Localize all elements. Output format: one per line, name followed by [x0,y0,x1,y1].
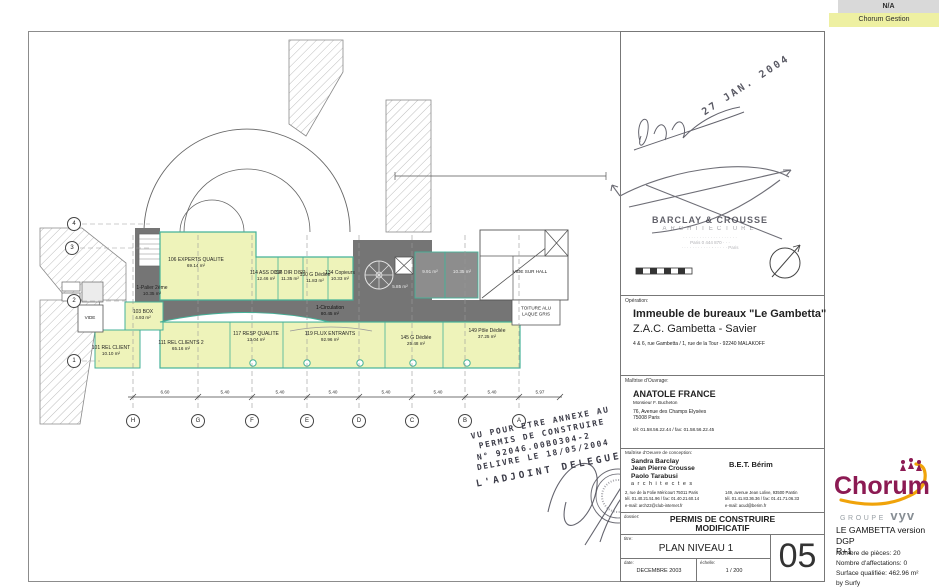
axis-bubble-d: D [352,414,366,428]
branding-card: Chorum GROUPE vyv LE GAMBETTA version DG… [830,455,939,588]
dim-label: 5.40 [329,390,338,395]
axis-bubble-c: C [405,414,419,428]
stat-surface: Surface qualifiée: 462.96 m² [836,569,918,579]
owner-name: ANATOLE FRANCE [633,389,716,399]
titre-label: titre: [624,536,633,541]
stat-pieces: Nombre de pièces: 20 [836,549,918,559]
titleblock-architect: Maîtrise d'Oeuvre de conception: Sandra … [620,448,825,514]
tab-na[interactable]: N/A [838,0,939,13]
owner-phone: tél: 01.58.56.22.44 / fax: 01.58.56.22.4… [633,427,714,432]
room-label-101: 101 REL CLIENT10.10 m² [92,345,130,357]
architect-email: e-mail: arch22@club-internet.fr [625,503,683,508]
room-label-wc1: 9.91 m² [422,269,438,275]
sheet-number: 05 [771,537,824,576]
bet-phone: tél. 01.41.83.36.36 / fax: 01.41.71.06.3… [725,496,799,501]
chorum-logo-icon: Chorum [833,458,933,506]
axis-bubble-b: B [458,414,472,428]
room-label-134: 134 Copieurs10.33 m² [325,270,355,282]
room-label-145: 145 G Dédiée25.48 m² [401,335,432,347]
bet-address: 149, avenue Jean Lolive, 93500 Pantin [725,490,797,495]
architect-names: Sandra Barclay Jean Pierre Crousse Paolo… [631,458,695,480]
dim-label: 5.40 [276,390,285,395]
architect-address: 2, rue de la Folie Méricourt 75011 Paris [625,490,698,495]
dossier-title: PERMIS DE CONSTRUIRE MODIFICATIF [621,515,824,534]
room-label-117: 117 RESP QUALITE13.04 m² [233,331,279,343]
room-label-menage: 5.85 m² [392,284,408,290]
room-label-vide: VIDE [85,315,96,321]
vyv-text: vyv [890,508,915,523]
owner-contact: Monsieur F. Bucheton [633,400,677,405]
titleblock-owner: Maîtrise d'Ouvrage: ANATOLE FRANCE Monsi… [620,375,825,450]
room-label-wc2: 10.35 m² [453,269,471,275]
titleblock-stamp-area [620,31,825,297]
titleblock-sheet-number: 05 [770,534,825,582]
echelle-label: échelle: [700,560,715,565]
room-label-toiture: TOITURE ALULAQUE GRIS [521,305,551,316]
titleblock-echelle: échelle: 1 / 200 [696,558,772,582]
titleblock-titre: titre: PLAN NIVEAU 1 [620,534,772,560]
bet-name: B.E.T. Bérim [729,460,773,469]
axis-bubble-2: 2 [67,294,81,308]
room-label-119: 119 FLUX ENTRANTS92.96 m² [305,331,355,343]
app-canvas: 106 EXPERTS QUALITE69.14 m² 1-Palier 2èm… [0,0,939,588]
date-label: date: [624,560,634,565]
axis-bubble-f: F [245,414,259,428]
dim-label: 5.40 [488,390,497,395]
room-label-circulation: 1-Circulation80.45 m² [316,305,344,317]
dim-label: 5.40 [221,390,230,395]
date-value: DECEMBRE 2003 [621,568,697,574]
dim-label: 5.40 [382,390,391,395]
svg-text:Chorum: Chorum [834,472,930,500]
tab-chorum-gestion[interactable]: Chorum Gestion [829,13,939,27]
operation-address: 4 & 6, rue Gambetta / 1, rue de la Tour … [633,341,765,347]
stat-credit: by Surfy [836,579,918,588]
dim-label: 5.97 [536,390,545,395]
titre-value: PLAN NIVEAU 1 [621,543,771,554]
operation-label: Opération: [625,298,648,304]
room-label-149: 149 Pôle Dédiée37.25 m² [469,328,506,340]
room-label-111: 111 REL CLIENTS 265.16 m² [158,340,203,352]
architect-phone: tél. 01.40.21.51.96 / fax: 01.40.21.60.1… [625,496,699,501]
dim-label: 6.60 [161,390,170,395]
room-label-palier: 1-Palier 2ème10.35 m² [136,285,167,297]
room-label-106: 106 EXPERTS QUALITE69.14 m² [168,257,224,269]
axis-bubble-4: 4 [67,217,81,231]
titleblock-operation: Opération: Immeuble de bureaux "Le Gambe… [620,295,825,377]
titleblock-date: date: DECEMBRE 2003 [620,558,698,582]
project-stats: Nombre de pièces: 20 Nombre d'affectatio… [836,549,918,588]
groupe-text: GROUPE [840,515,886,522]
dim-label: 5.40 [434,390,443,395]
axis-bubble-3: 3 [65,241,79,255]
axis-bubble-g: G [191,414,205,428]
groupe-vyv-logo: GROUPE vyv [840,507,915,525]
owner-address2: 75008 Paris [633,415,660,421]
stat-affectations: Nombre d'affectations: 0 [836,559,918,569]
room-label-vide-sur-hall: VIDE SUR HALL [513,269,547,275]
bet-email: e-mail: acud@berim.fr [725,503,766,508]
operation-title: Immeuble de bureaux "Le Gambetta" [633,308,826,320]
axis-bubble-1: 1 [67,354,81,368]
architect-label: Maîtrise d'Oeuvre de conception: [625,450,692,455]
axis-bubble-e: E [300,414,314,428]
operation-subtitle: Z.A.C. Gambetta - Savier [633,323,756,335]
axis-bubble-h: H [126,414,140,428]
architect-title: a r c h i t e c t e s [631,481,693,487]
titleblock-dossier: dossier: PERMIS DE CONSTRUIRE MODIFICATI… [620,512,825,536]
echelle-value: 1 / 200 [697,568,771,574]
owner-label: Maîtrise d'Ouvrage: [625,378,668,384]
room-label-103: 103 BOX4.93 m² [133,309,153,321]
